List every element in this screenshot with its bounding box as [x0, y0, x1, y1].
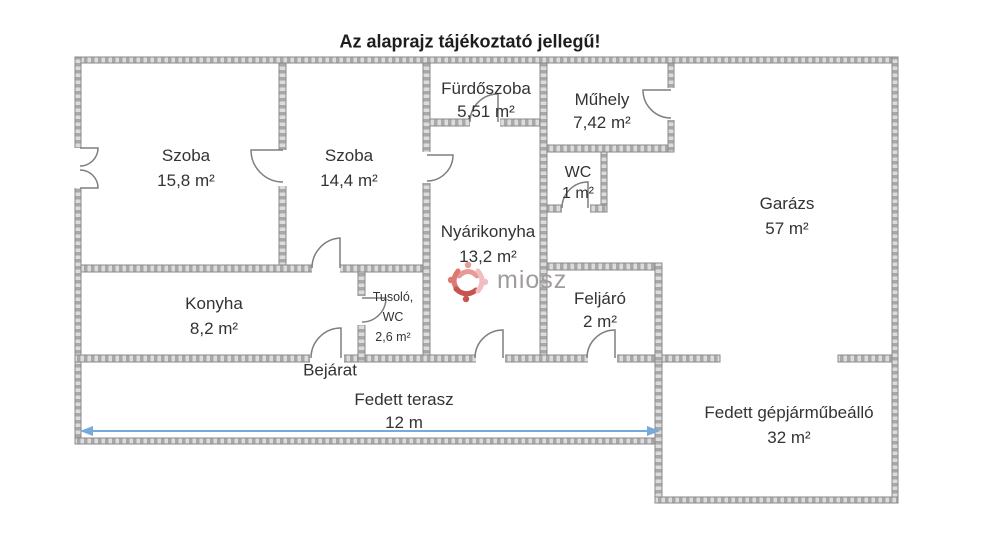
room-area: 13,2 m² — [441, 244, 536, 269]
room-area: 14,4 m² — [320, 168, 378, 193]
wall-wc-right — [601, 152, 607, 212]
room-label-nyarikonyha: Nyárikonyha 13,2 m² — [441, 219, 536, 269]
room-area: 1 m² — [562, 183, 594, 204]
room-name: Fedett terasz — [354, 390, 453, 409]
window-icon — [80, 148, 98, 188]
wall-center-right — [540, 63, 547, 355]
wall-garage-bottom-a — [662, 355, 720, 362]
floor-plan: Az alaprajz tájékoztató jellegű! miosz S… — [0, 0, 1000, 556]
room-name: Fedett gépjárműbeálló — [704, 403, 873, 422]
wall-outer-top — [75, 57, 898, 63]
wall-garage-bottom-b — [838, 355, 892, 362]
door-icon — [475, 330, 503, 358]
room-label-carport: Fedett gépjárműbeálló 32 m² — [704, 400, 873, 450]
room-name: Fürdőszoba — [441, 79, 531, 98]
room-label-furdoszoba: Fürdőszoba 5,51 m² — [441, 77, 531, 123]
room-name: WC — [373, 307, 414, 327]
label-fedett-terasz: Fedett terasz 12 m — [354, 388, 453, 434]
room-label-wc: WC 1 m² — [562, 162, 594, 204]
room-name: Tusoló, — [373, 290, 414, 304]
room-area: 8,2 m² — [185, 316, 243, 341]
room-label-garazs: Garázs 57 m² — [760, 191, 815, 241]
room-name: Bejárat — [303, 361, 357, 380]
watermark-brand: miosz — [497, 266, 567, 295]
room-name: Szoba — [325, 146, 373, 165]
room-label-konyha: Konyha 8,2 m² — [185, 291, 243, 341]
wall-center-left — [423, 63, 430, 355]
room-label-muhely: Műhely 7,42 m² — [573, 88, 631, 134]
room-name: Szoba — [162, 146, 210, 165]
door-icon — [311, 328, 341, 358]
room-label-szoba-2: Szoba 14,4 m² — [320, 143, 378, 193]
wall-outer-right — [892, 57, 898, 503]
room-name: WC — [565, 164, 592, 181]
room-name: Nyárikonyha — [441, 222, 536, 241]
room-label-szoba-1: Szoba 15,8 m² — [157, 143, 215, 193]
room-name: Konyha — [185, 294, 243, 313]
wall-terrace-bottom — [75, 438, 662, 444]
wall-kitchen-top — [81, 265, 430, 272]
room-area: 15,8 m² — [157, 168, 215, 193]
room-area: 5,51 m² — [441, 100, 531, 123]
door-icon — [643, 90, 671, 118]
room-name: Feljáró — [574, 289, 626, 308]
room-area: 2 m² — [574, 310, 626, 333]
plan-title: Az alaprajz tájékoztató jellegű! — [339, 32, 600, 53]
wall-outer-left — [75, 57, 81, 444]
room-label-tusolo-wc: Tusoló, WC 2,6 m² — [373, 287, 414, 347]
wall-stairs-right — [655, 263, 662, 362]
wall-carport-bottom — [655, 497, 898, 503]
wall-house-bottom — [75, 355, 662, 362]
door-icon — [587, 330, 615, 358]
label-bejarat: Bejárat — [303, 358, 357, 383]
room-label-feljaro: Feljáró 2 m² — [574, 287, 626, 333]
room-area: 32 m² — [704, 425, 873, 450]
room-name: Műhely — [575, 90, 630, 109]
room-name: Garázs — [760, 194, 815, 213]
wall-carport-left — [655, 355, 662, 503]
wall-workshop-bottom — [547, 145, 674, 152]
terrace-dimension: 12 m — [354, 411, 453, 434]
room-area: 7,42 m² — [573, 111, 631, 134]
room-area: 2,6 m² — [373, 327, 414, 347]
door-icon — [312, 238, 340, 268]
room-area: 57 m² — [760, 216, 815, 241]
